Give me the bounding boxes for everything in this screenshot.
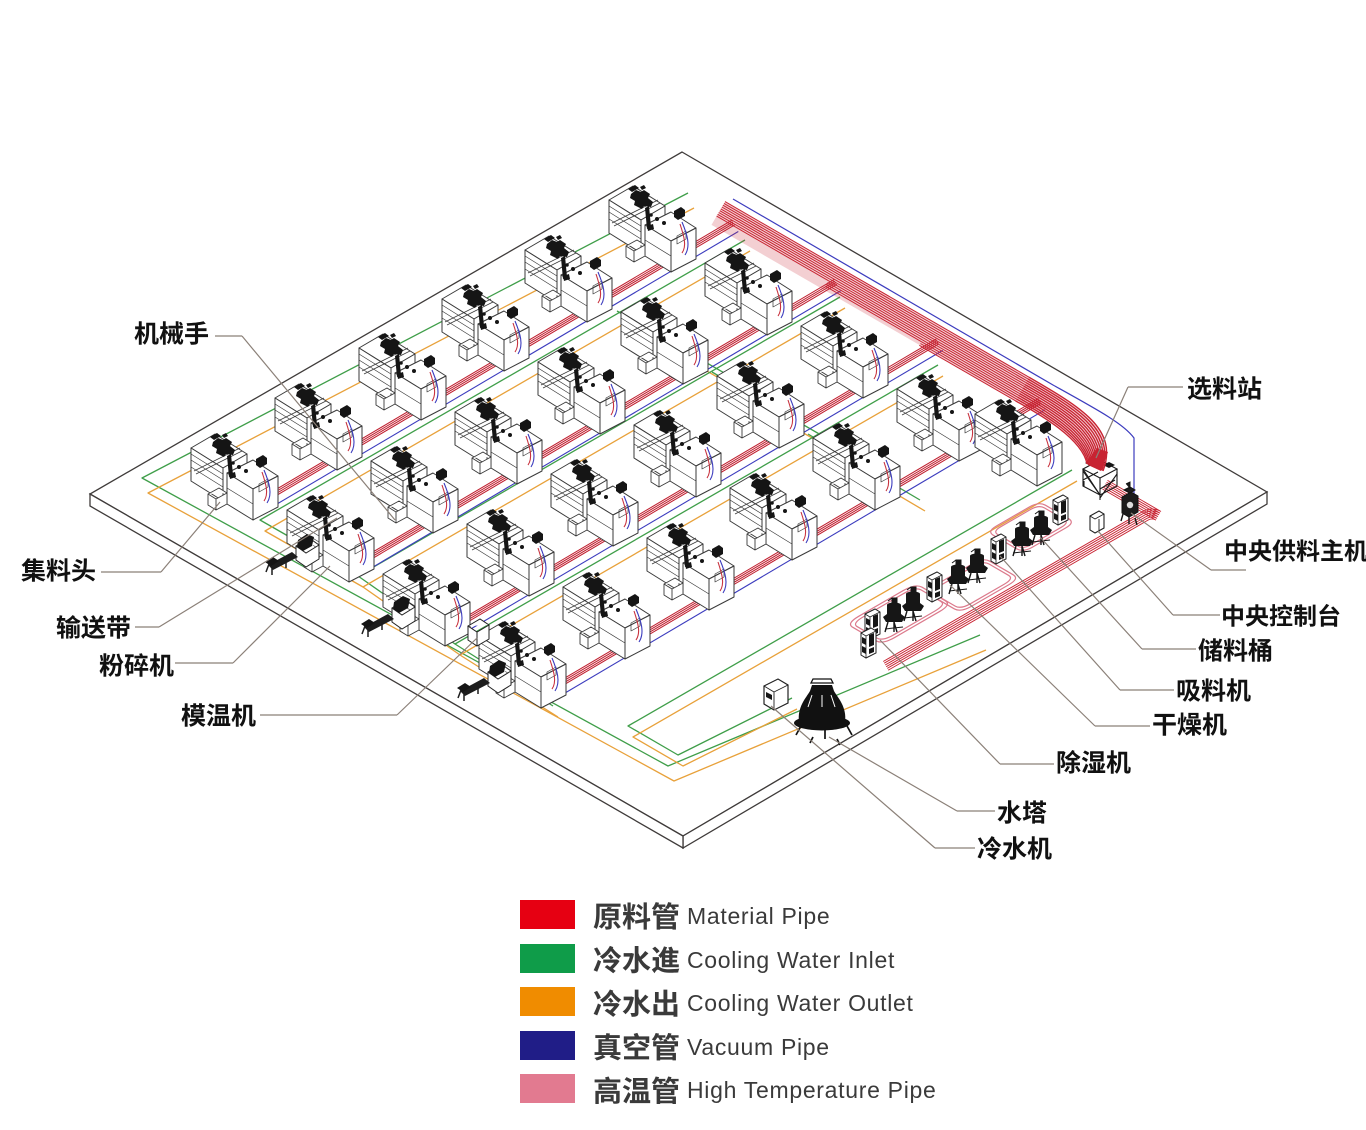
svg-text:Cooling Water Outlet: Cooling Water Outlet: [687, 990, 914, 1016]
svg-text:Cooling Water Inlet: Cooling Water Inlet: [687, 947, 895, 973]
svg-text:High Temperature Pipe: High Temperature Pipe: [687, 1077, 937, 1103]
svg-text:Material Pipe: Material Pipe: [687, 903, 830, 929]
svg-text:Vacuum Pipe: Vacuum Pipe: [687, 1034, 830, 1060]
